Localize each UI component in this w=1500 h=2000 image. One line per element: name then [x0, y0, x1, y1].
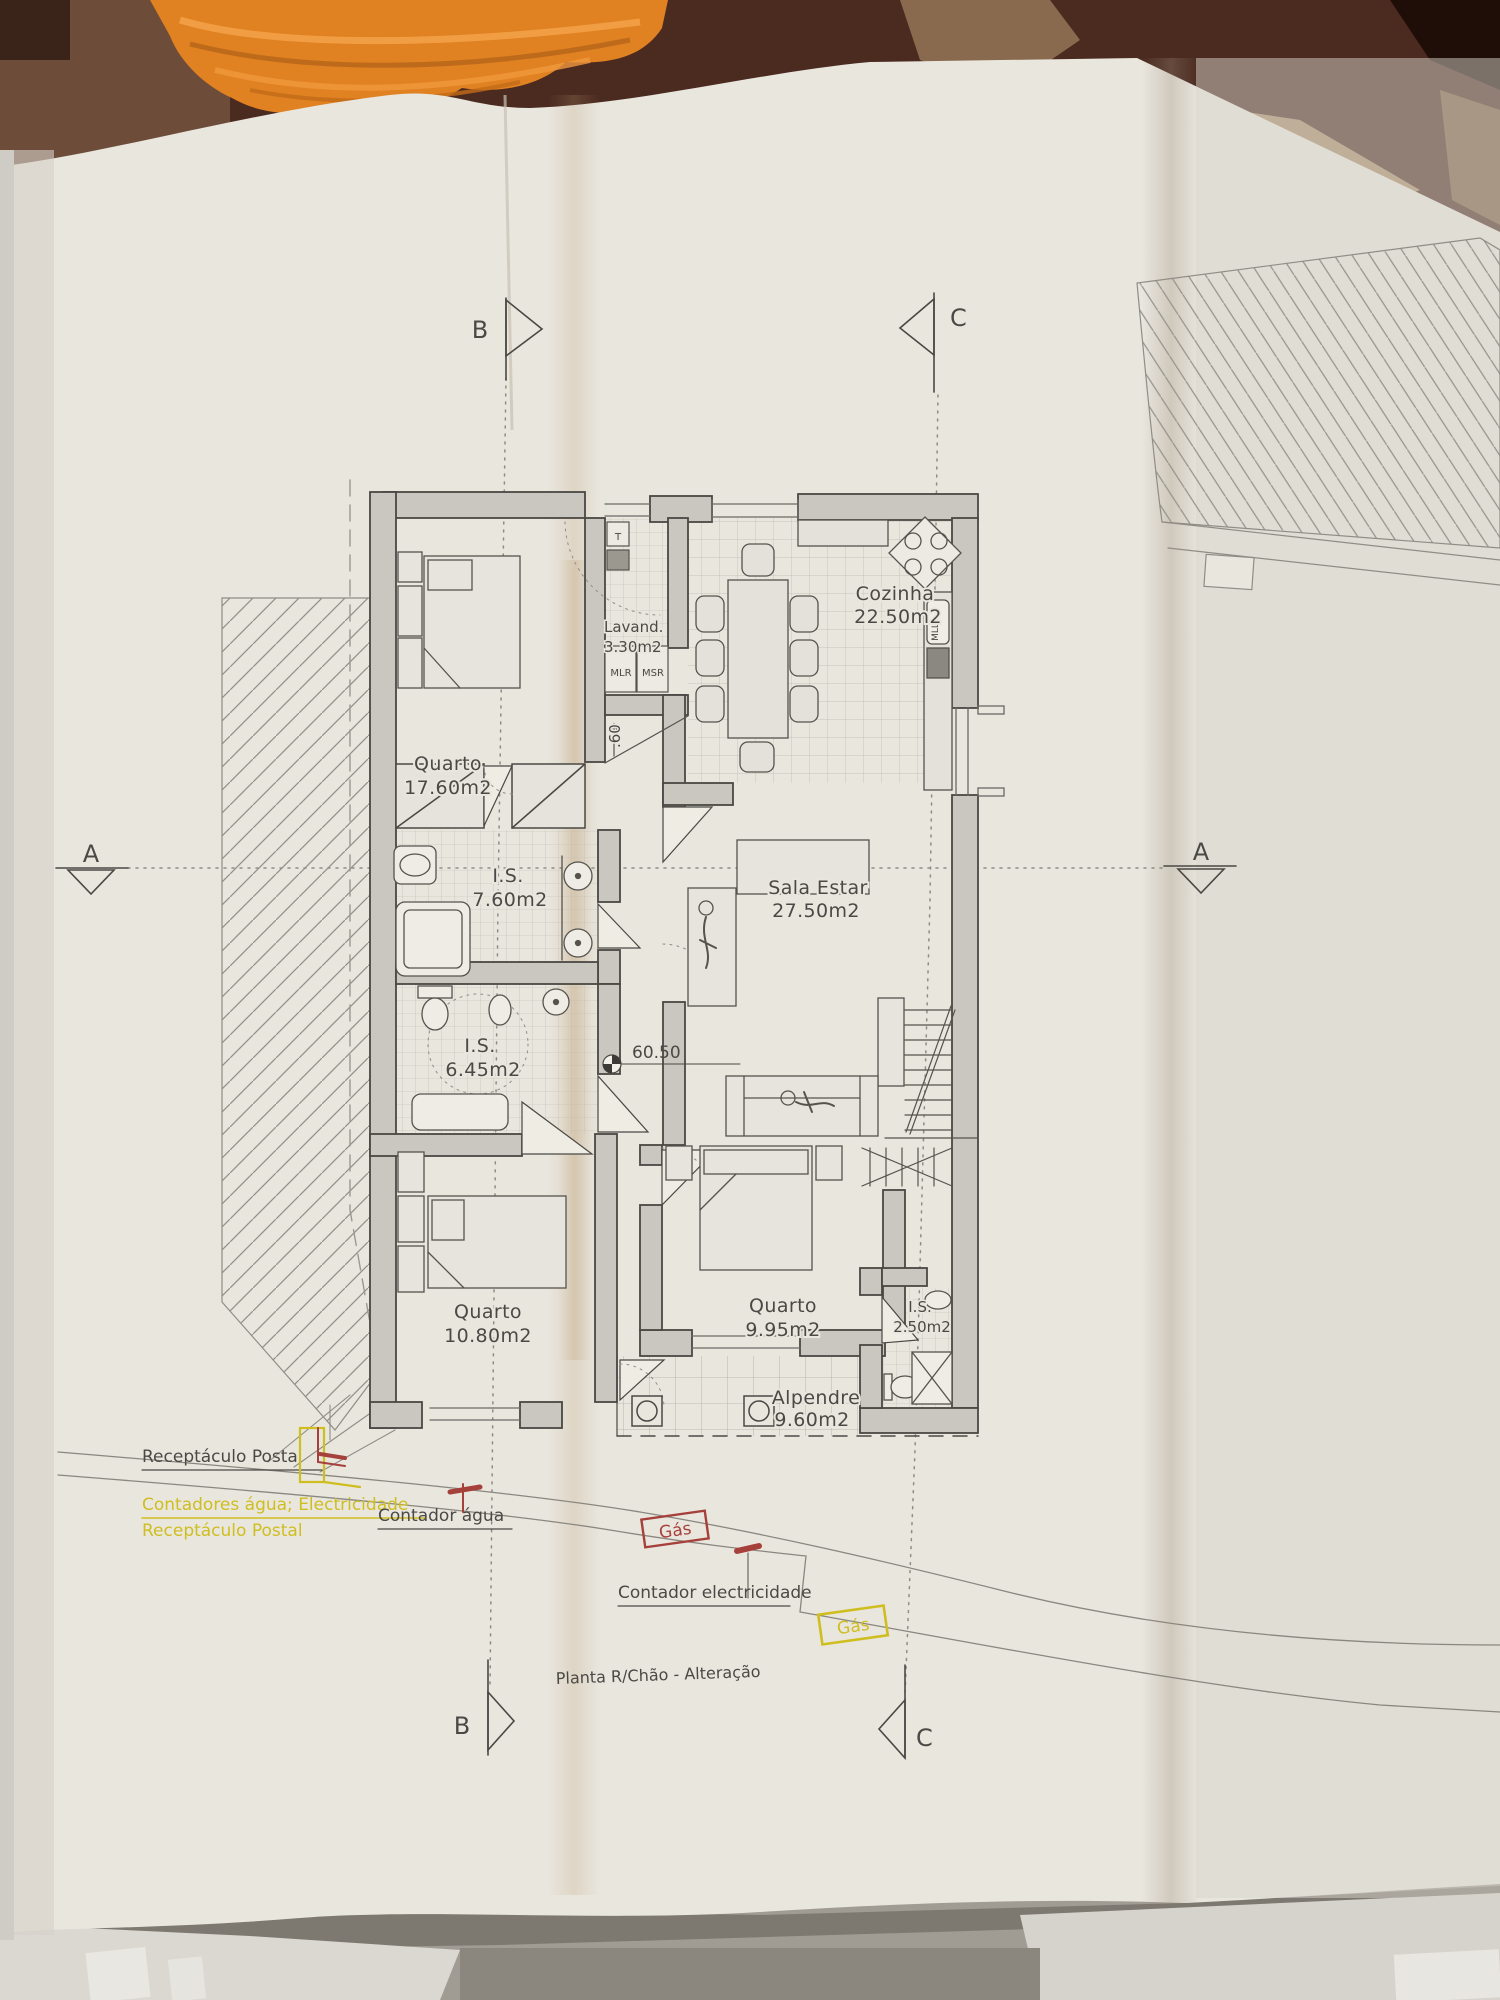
- wardrobe: [398, 586, 422, 636]
- shower-tray: [396, 902, 470, 976]
- bed: [428, 1196, 566, 1288]
- marker-a-right-label: A: [1193, 838, 1210, 866]
- sofa: [726, 1076, 878, 1136]
- room-area-alpendre: 9.60m2: [774, 1409, 849, 1431]
- room-area-quarto3: 9.95m2: [745, 1319, 820, 1341]
- sink-drainer: [927, 648, 949, 678]
- chair: [790, 640, 818, 676]
- chair-leg: [86, 1947, 151, 2000]
- level-value: 60.50: [632, 1043, 681, 1063]
- room-label-alpendre: Alpendre: [772, 1387, 860, 1409]
- toilet: [422, 998, 448, 1030]
- marker-b-top-label: B: [472, 316, 488, 344]
- sideboard: [878, 998, 904, 1086]
- room-label-is3: I.S.: [908, 1298, 931, 1316]
- chair: [696, 640, 724, 676]
- neighbor-hatch-right: [1137, 238, 1500, 548]
- annotation-contador-elec: Contador electricidade: [618, 1583, 812, 1603]
- vanity: [412, 1094, 508, 1130]
- appliance-msr: MSR: [642, 668, 664, 679]
- dining-table: [728, 580, 788, 738]
- chair-corner: [1394, 1949, 1500, 2000]
- gap-shadow: [460, 1948, 1040, 2000]
- neighbor-hatch-left: [222, 598, 386, 1430]
- room-area-quarto2: 10.80m2: [444, 1325, 532, 1347]
- room-label-sala: Sala Estar: [768, 877, 867, 899]
- heater-grille: [607, 550, 629, 570]
- nightstand: [666, 1146, 692, 1180]
- room-area-lavandaria: 3.30m2: [604, 638, 662, 656]
- annotation-postal-yellow: Receptáculo Postal: [142, 1521, 303, 1541]
- room-label-lavandaria: Lavand.: [604, 618, 663, 636]
- room-area-cozinha: 22.50m2: [854, 606, 942, 628]
- counter: [798, 520, 888, 546]
- marker-c-top-label: C: [950, 304, 967, 332]
- bed: [700, 1146, 812, 1270]
- annotation-postal-gray: Receptáculo Postal: [142, 1447, 303, 1467]
- room-area-quarto1: 17.60m2: [404, 777, 492, 799]
- room-area-is3: 2.50m2: [893, 1318, 951, 1336]
- bidet: [489, 995, 511, 1025]
- wardrobe: [398, 638, 422, 688]
- room-area-is1: 7.60m2: [472, 889, 547, 911]
- chair: [790, 596, 818, 632]
- appliance-mlr: MLR: [610, 668, 631, 679]
- room-label-is1: I.S.: [492, 865, 523, 887]
- annotation-contadores: Contadores água; Electricidade: [142, 1495, 408, 1515]
- marker-a-left-label: A: [83, 840, 100, 868]
- annotation-contador-agua: Contador água: [378, 1506, 504, 1526]
- room-label-is2: I.S.: [464, 1035, 495, 1057]
- marker-c-bottom-label: C: [916, 1724, 933, 1752]
- wardrobe: [398, 1246, 424, 1292]
- nightstand: [398, 1152, 424, 1192]
- chair: [696, 596, 724, 632]
- photo-of-floor-plan: 60.50 .60 Quarto 17.60m2 Lavand. 3.30m2 …: [0, 0, 1500, 2000]
- left-edge-shading: [14, 150, 54, 1935]
- room-label-quarto2: Quarto: [454, 1301, 522, 1323]
- quarto1-furniture: [398, 552, 520, 688]
- room-label-quarto3: Quarto: [749, 1295, 817, 1317]
- chair: [740, 742, 774, 772]
- site-box: [1204, 554, 1254, 589]
- room-label-quarto1: Quarto: [414, 753, 482, 775]
- marker-b-bottom-label: B: [454, 1712, 470, 1740]
- room-area-is2: 6.45m2: [445, 1059, 520, 1081]
- paper-left-edge: [0, 150, 14, 1940]
- toilet-tank: [418, 986, 452, 998]
- chair: [742, 544, 774, 576]
- chair: [696, 686, 724, 722]
- chair: [790, 686, 818, 722]
- nightstand: [398, 552, 422, 582]
- room-label-cozinha: Cozinha: [856, 583, 935, 605]
- room-area-sala: 27.50m2: [772, 900, 860, 922]
- chair-leg: [168, 1956, 206, 2000]
- step-dimension: .60: [606, 724, 624, 748]
- nightstand: [816, 1146, 842, 1180]
- wardrobe: [398, 1196, 424, 1242]
- appliance-t: T: [614, 532, 622, 543]
- table-corner-shadow: [0, 0, 70, 60]
